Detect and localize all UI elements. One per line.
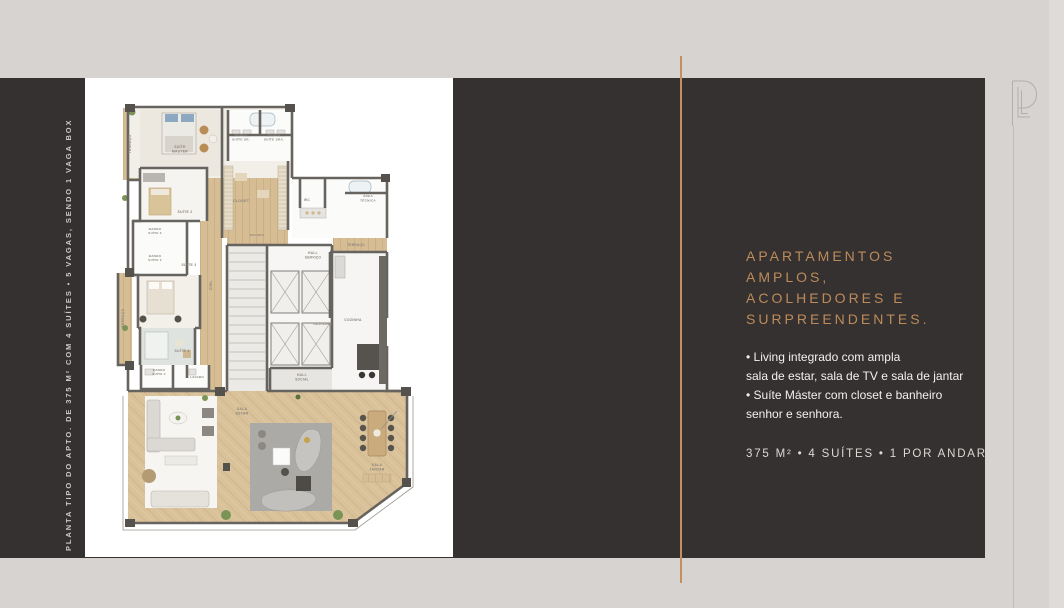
right-edge-strip <box>1049 0 1064 608</box>
feature-list: • Living integrado com ampla sala de est… <box>746 348 976 424</box>
room-label: CIRC. <box>209 280 213 290</box>
pl-monogram-icon <box>1004 78 1040 128</box>
gold-divider-line <box>680 56 682 583</box>
room-label: SUÍTE 3 <box>182 262 197 267</box>
room-label: BANHOSUÍTE SR. <box>232 133 250 141</box>
plan-caption: PLANTA TIPO DO APTO. DE 375 M² COM 4 SUÍ… <box>64 215 76 551</box>
headline: APARTAMENTOS AMPLOS, ACOLHEDORES E SURPR… <box>746 246 976 330</box>
brand-rule-line <box>1013 126 1014 608</box>
room-label: DESPENSA <box>314 322 333 326</box>
room-label: CLOSET <box>233 199 250 203</box>
room-label: COZINHA <box>344 318 362 322</box>
room-label: SUÍTE 4 <box>175 348 190 353</box>
stats-line: 375 M² • 4 SUÍTES • 1 POR ANDAR <box>746 448 976 460</box>
room-label: TERRAÇO <box>128 135 132 154</box>
floor-plan-paper: TERRAÇOSUÍTEMASTERBANHOSUÍTE SR.BANHOSUÍ… <box>85 78 453 557</box>
floor-plan-image: TERRAÇOSUÍTEMASTERBANHOSUÍTE SR.BANHOSUÍ… <box>85 78 453 557</box>
room-label: ESCADA <box>250 233 265 237</box>
feature-bullet: • Living integrado com ampla sala de est… <box>746 348 976 386</box>
feature-bullet: • Suíte Máster com closet e banheiro sen… <box>746 386 976 424</box>
room-label: BANHOSUÍTE 3 <box>148 254 161 262</box>
apartment-copy: APARTAMENTOS AMPLOS, ACOLHEDORES E SURPR… <box>746 246 976 460</box>
room-label: TERRAÇO <box>347 243 365 247</box>
room-label: BANHOSUÍTE 4 <box>152 368 165 376</box>
room-label: SUÍTE 2 <box>178 209 193 214</box>
room-label: SALAESTAR <box>236 407 249 416</box>
room-label: WC <box>304 198 310 202</box>
brand-mark <box>1004 78 1044 608</box>
room-label: HALLSOCIAL <box>295 373 309 381</box>
room-label: LAVABO <box>190 375 204 379</box>
room-label: BANHOSUÍTE 2 <box>148 227 161 235</box>
room-label: TERRAÇO <box>121 309 125 328</box>
